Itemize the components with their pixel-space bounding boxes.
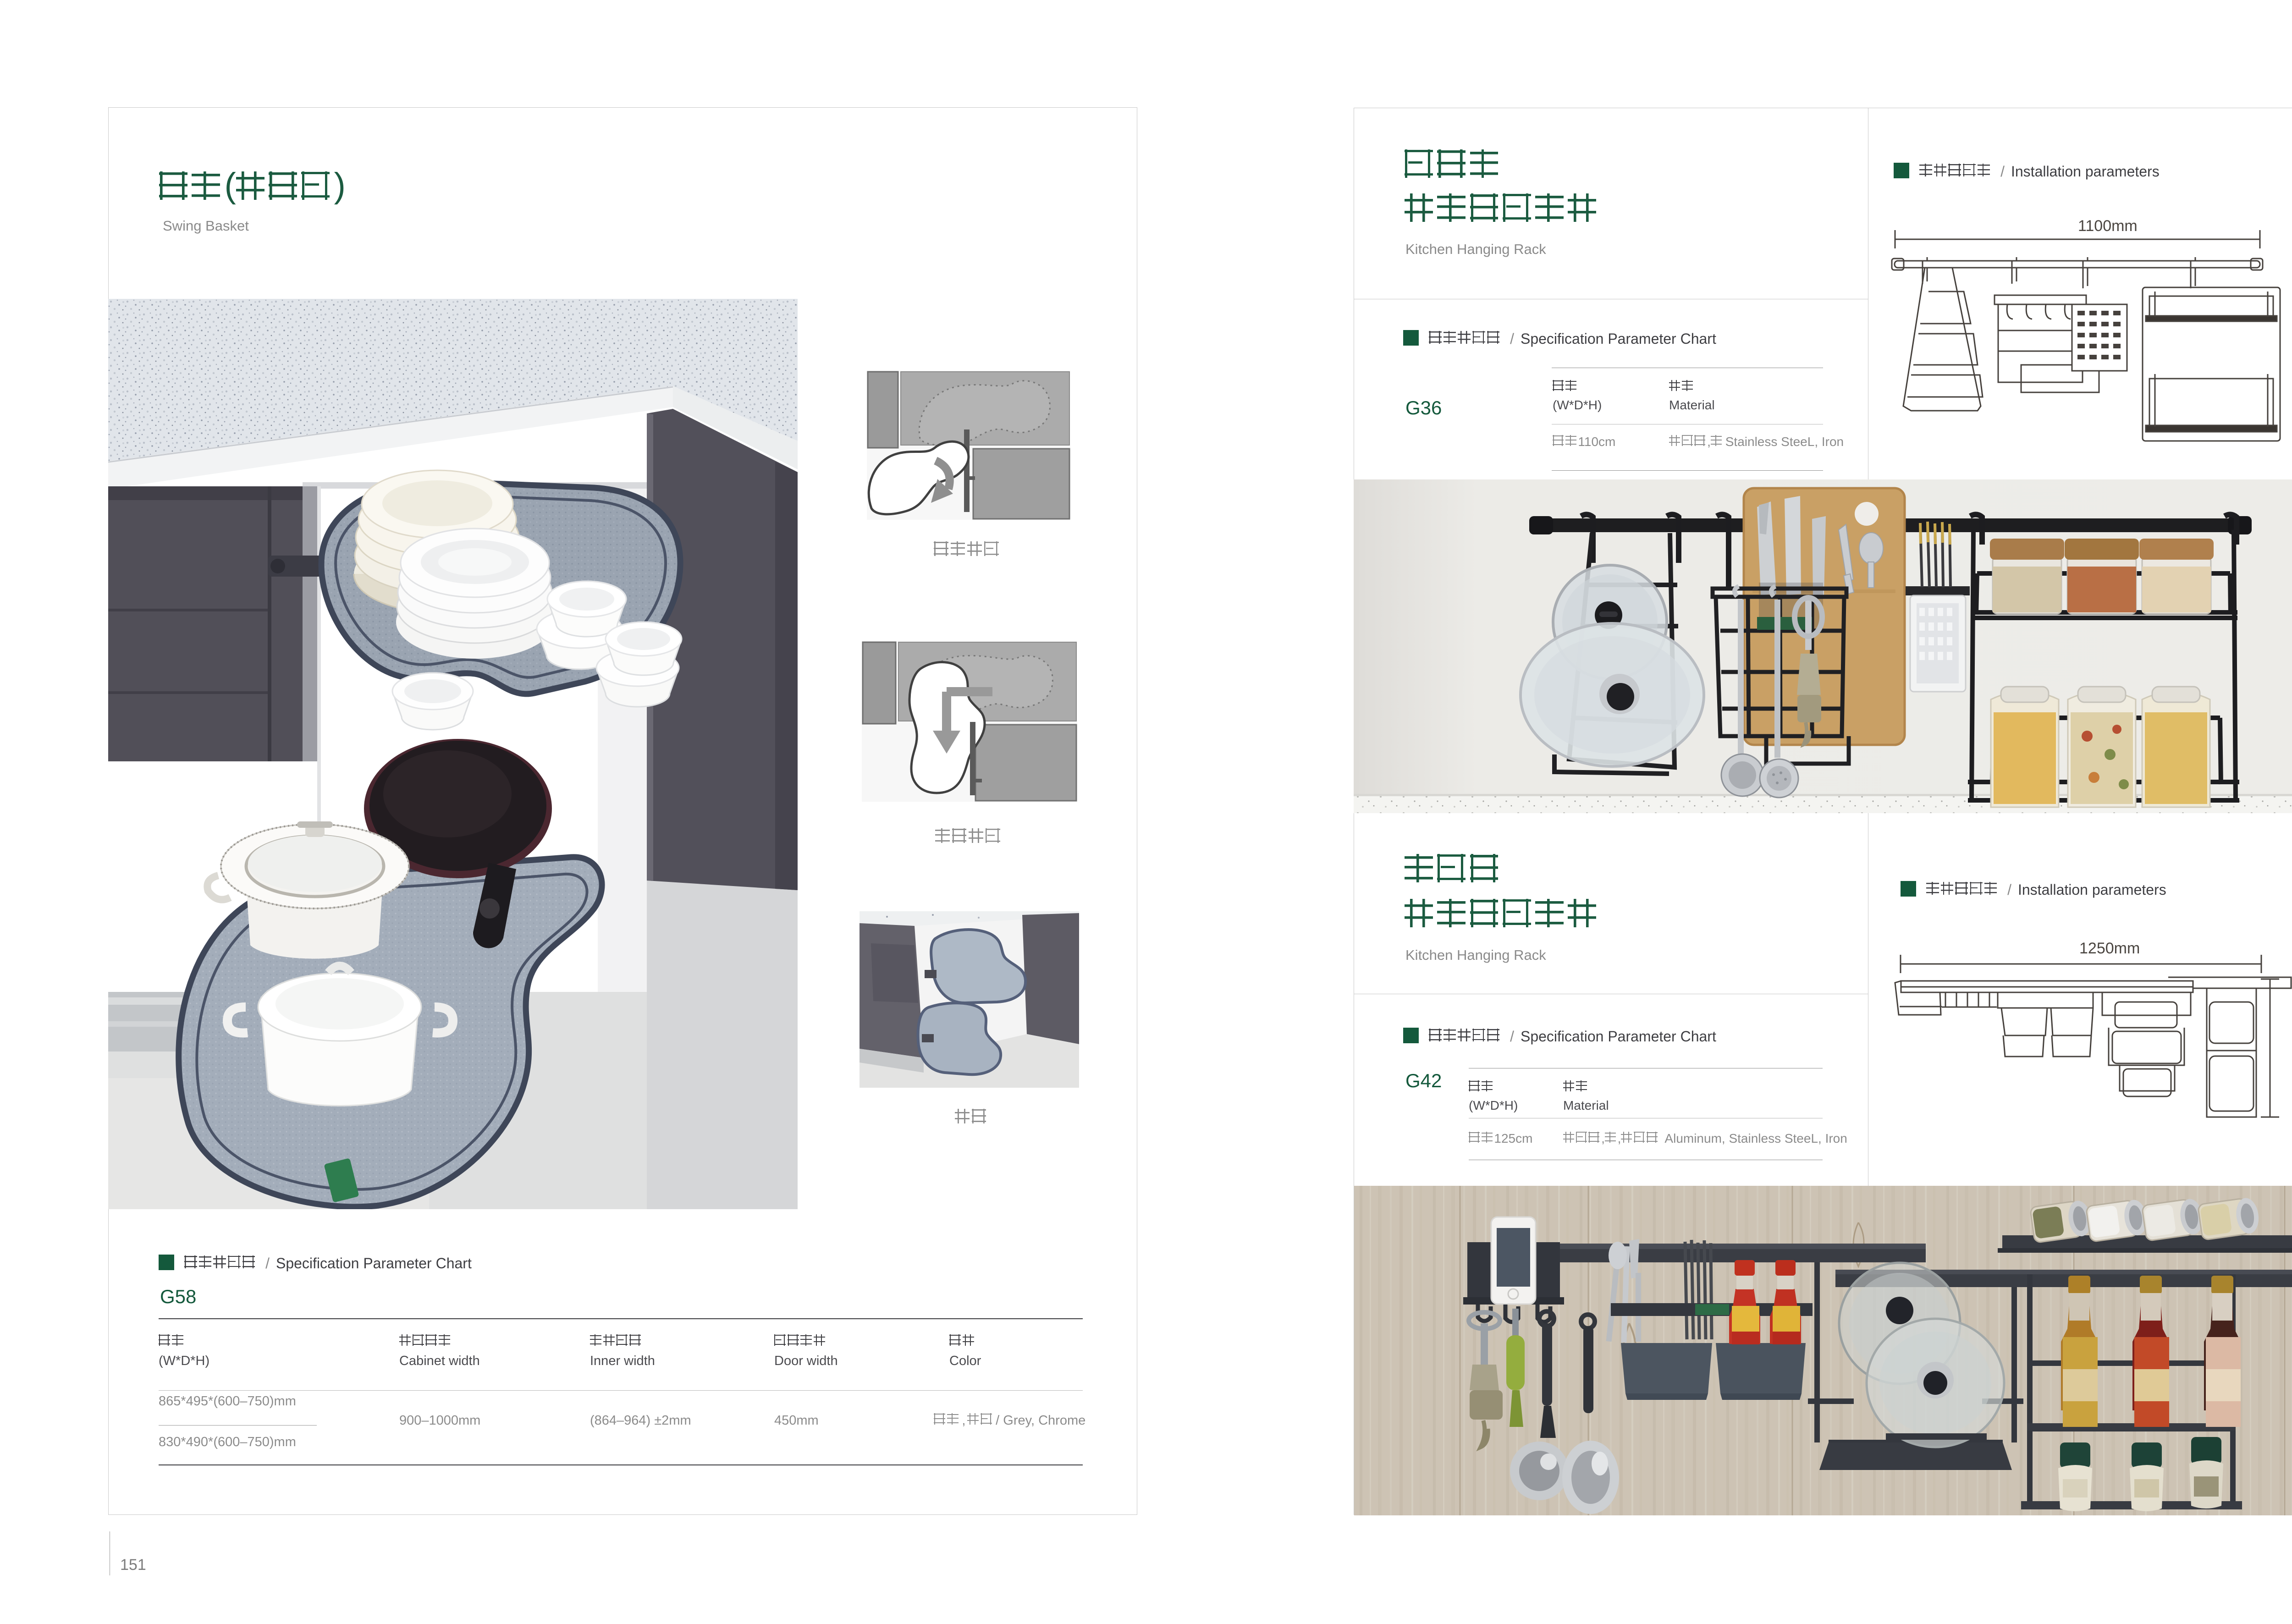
svg-text:1250mm: 1250mm xyxy=(2079,940,2140,957)
svg-text:1100mm: 1100mm xyxy=(2078,217,2138,235)
